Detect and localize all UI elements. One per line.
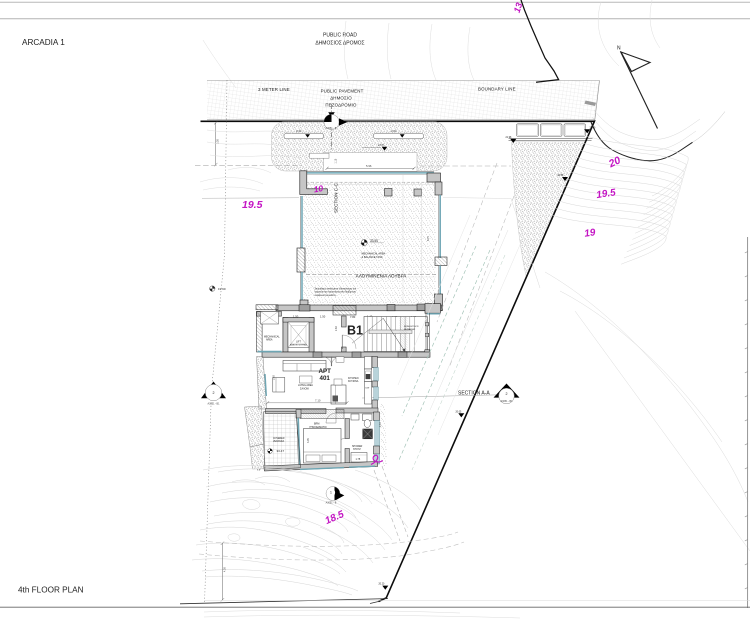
svg-text:20.05: 20.05 [456, 411, 462, 413]
svg-text:7.10: 7.10 [315, 399, 321, 403]
svg-text:COVERED: COVERED [273, 438, 285, 440]
svg-text:ΝΤΟΥΖ: ΝΤΟΥΖ [353, 449, 361, 451]
svg-text:LIFT: LIFT [296, 342, 301, 344]
svg-text:ΚΟΥΖΙΝΑ: ΚΟΥΖΙΝΑ [348, 380, 359, 383]
svg-text:2=30: 2=30 [296, 130, 302, 133]
svg-text:ΥΠΝΟΔΩΜΑΤΙΟ: ΥΠΝΟΔΩΜΑΤΙΟ [309, 426, 327, 429]
svg-text:ΔΗΜΟΣΙΟΣ ΔΡΟΜΟΣ: ΔΗΜΟΣΙΟΣ ΔΡΟΜΟΣ [315, 41, 364, 47]
svg-text:ΜΟΝΦΞΤΙΛΟΣ: ΜΟΝΦΞΤΙΛΟΣ [404, 325, 419, 328]
svg-text:19.5: 19.5 [242, 199, 263, 211]
svg-text:1: 1 [330, 490, 332, 494]
svg-text:A3051 - B: A3051 - B [326, 127, 337, 130]
svg-text:B1: B1 [347, 324, 363, 338]
svg-text:33.50: 33.50 [370, 239, 378, 243]
svg-text:19.90: 19.90 [218, 287, 226, 291]
svg-text:ΠΕΖΟΔΡΟΜΙΟ: ΠΕΖΟΔΡΟΜΙΟ [325, 103, 357, 108]
svg-text:4th FLOOR PLAN: 4th FLOOR PLAN [18, 586, 84, 595]
svg-text:A3051 - B: A3051 - B [326, 502, 337, 505]
svg-text:401: 401 [320, 375, 331, 382]
svg-text:PUBLIC PAVEMENT: PUBLIC PAVEMENT [321, 89, 364, 94]
svg-text:ΣΑΛΟΝΙ: ΣΑΛΟΝΙ [300, 387, 309, 390]
svg-text:AREA: AREA [266, 339, 273, 342]
svg-text:3: 3 [329, 119, 331, 123]
svg-text:VERANDA: VERANDA [273, 440, 285, 443]
svg-text:BOUNDARY LINE: BOUNDARY LINE [478, 87, 516, 92]
svg-text:1.75: 1.75 [356, 458, 361, 461]
svg-text:3 METER LINE: 3 METER LINE [258, 87, 290, 92]
svg-text:ΑΝΕΛΚΥΣΤΗΡΑΣ: ΑΝΕΛΚΥΣΤΗΡΑΣ [290, 344, 308, 347]
svg-text:& BALANCE TANK: & BALANCE TANK [362, 256, 383, 259]
svg-text:ΑΛΟΥΜΙΝΕΝΙΑ ΛΟΥΒΡΑ: ΑΛΟΥΜΙΝΕΝΙΑ ΛΟΥΒΡΑ [356, 273, 408, 278]
svg-text:APT: APT [319, 368, 332, 375]
svg-text:ΒΕΡΑΝΤΑΣ: ΒΕΡΑΝΤΑΣ [404, 328, 416, 331]
svg-text:9.8°: 9.8° [257, 470, 261, 472]
svg-text:A3051 - B1: A3051 - B1 [501, 400, 514, 403]
svg-text:PUBLIC ROAD: PUBLIC ROAD [323, 33, 357, 39]
svg-text:19: 19 [584, 227, 597, 240]
svg-text:2: 2 [213, 391, 215, 395]
svg-text:8.75: 8.75 [427, 236, 430, 241]
svg-text:3.05: 3.05 [307, 438, 310, 443]
svg-text:4.00: 4.00 [223, 567, 226, 572]
svg-text:33.47: 33.47 [277, 449, 285, 453]
svg-text:SECTION A-A: SECTION A-A [458, 391, 490, 397]
svg-text:ARCADIA 1: ARCADIA 1 [22, 38, 65, 47]
svg-text:2.60: 2.60 [335, 326, 338, 331]
svg-text:SHOWER: SHOWER [352, 446, 363, 448]
svg-text:A3051 - B1: A3051 - B1 [208, 403, 221, 406]
svg-text:συμφωνα με μελετη.: συμφωνα με μελετη. [315, 294, 337, 297]
svg-text:20.20: 20.20 [379, 584, 385, 586]
svg-text:7.80: 7.80 [350, 315, 356, 319]
svg-text:SECTION C-C: SECTION C-C [334, 182, 339, 213]
svg-text:N: N [617, 46, 621, 52]
svg-text:1.50: 1.50 [320, 315, 326, 319]
svg-text:10: 10 [313, 183, 324, 195]
svg-text:5.96: 5.96 [366, 164, 372, 168]
svg-text:2=30: 2=30 [391, 130, 397, 133]
svg-text:1.15: 1.15 [335, 158, 338, 163]
svg-text:21.98: 21.98 [506, 137, 512, 139]
svg-text:3.60: 3.60 [273, 375, 276, 380]
svg-text:ΔΗΜΟΣΙΟ: ΔΗΜΟΣΙΟ [330, 96, 352, 101]
svg-text:23.87: 23.87 [378, 144, 385, 147]
svg-text:20.89: 20.89 [558, 175, 564, 177]
svg-text:2: 2 [506, 392, 508, 396]
